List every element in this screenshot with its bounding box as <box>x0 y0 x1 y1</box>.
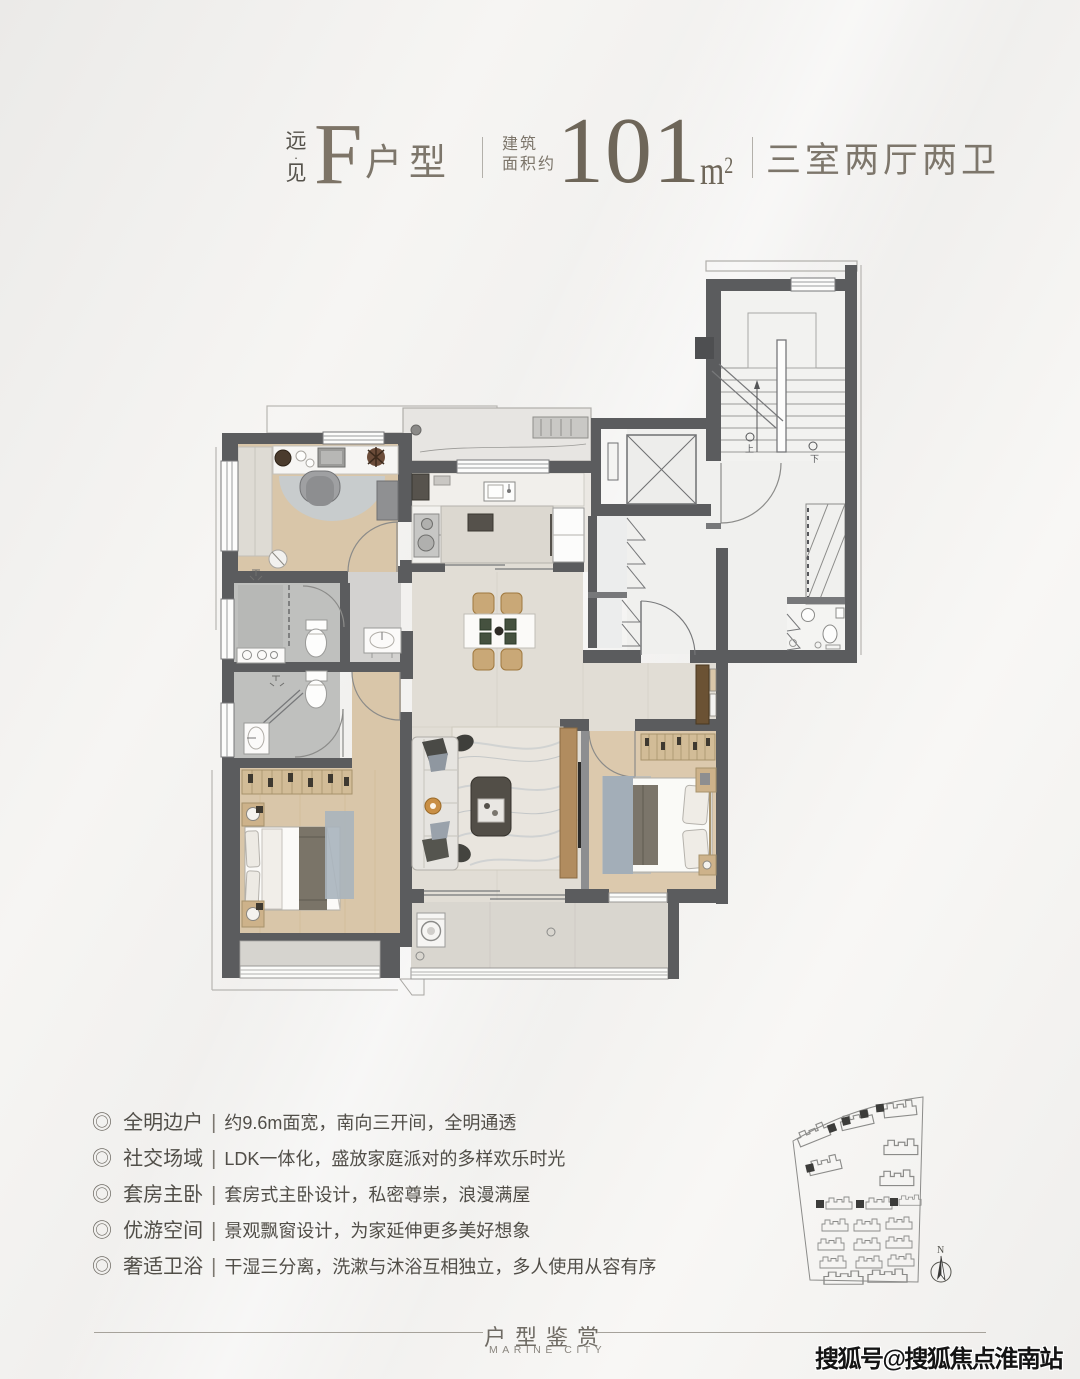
svg-text:N: N <box>937 1245 944 1256</box>
svg-text:下: 下 <box>810 454 819 464</box>
svg-text:上: 上 <box>745 444 754 454</box>
